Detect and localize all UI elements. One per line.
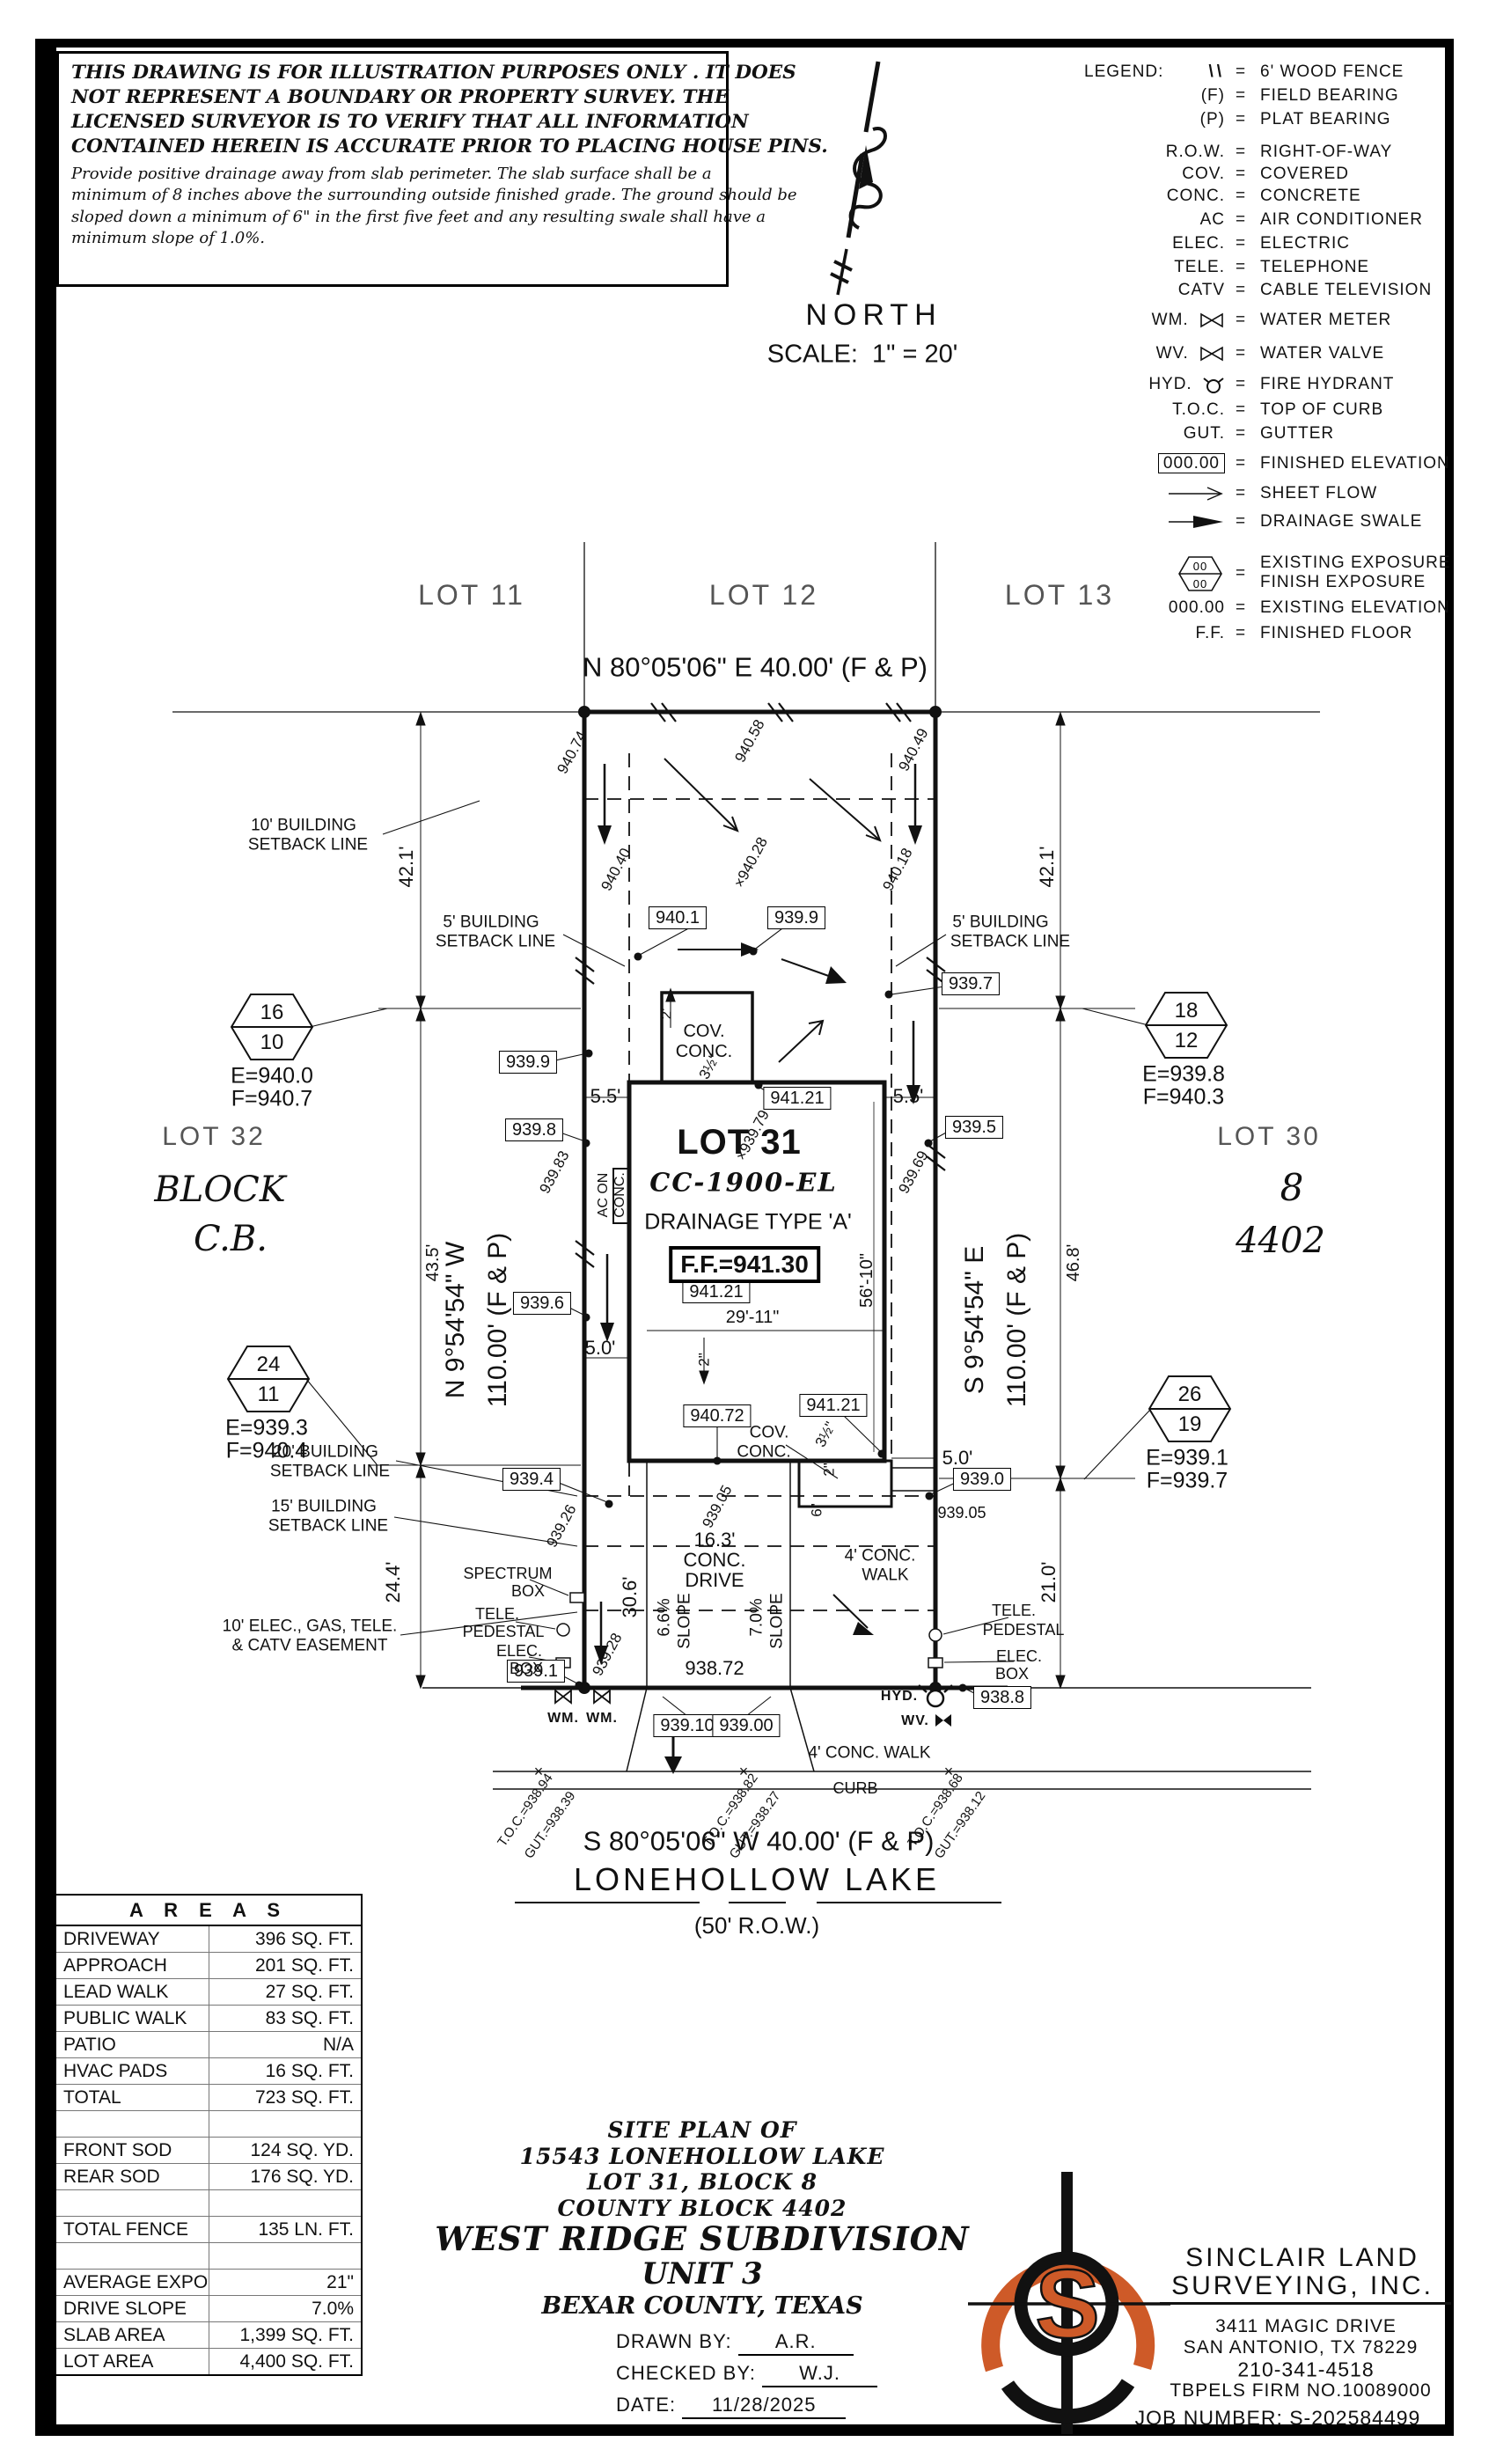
plan-text: 2' (659, 1008, 674, 1020)
plan-text: F=940.7 (231, 1089, 312, 1111)
plan-text: 5.5' (893, 1087, 924, 1106)
firm-address-2: SAN ANTONIO, TX 78229 (1184, 2337, 1419, 2358)
credits-block: DRAWN BY: A.R. CHECKED BY: W.J. DATE: 11… (616, 2330, 877, 2425)
plan-text: C.B. (194, 1221, 268, 1257)
area-label (55, 2111, 209, 2138)
date-label: DATE: (616, 2394, 676, 2416)
plan-text: 7.0% (749, 1598, 766, 1636)
south-bearing: S 80°05'06" W 40.00' (F & P) (583, 1828, 935, 1855)
plan-text: 10' ELEC., GAS, TELE. (223, 1618, 398, 1635)
area-value: 201 SQ. FT. (209, 1953, 362, 1979)
plan-text: F=939.7 (1147, 1470, 1228, 1492)
plan-text: HYD. (881, 1690, 918, 1704)
areas-row: SLAB AREA1,399 SQ. FT. (55, 2322, 362, 2349)
lot-32-label: LOT 32 (162, 1124, 266, 1150)
plan-text: BOX (510, 1661, 543, 1676)
area-label: AVERAGE EXPOSURE (55, 2270, 209, 2296)
plan-text: 939.6 (513, 1292, 571, 1315)
title-block: SITE PLAN OF15543 LONEHOLLOW LAKELOT 31,… (421, 2117, 984, 2321)
firm-address-1: 3411 MAGIC DRIVE (1215, 2316, 1397, 2337)
lot-13-label: LOT 13 (1005, 581, 1114, 609)
area-value: 124 SQ. YD. (209, 2138, 362, 2164)
plan-text: 110.00' (F & P) (485, 1233, 511, 1408)
firm-divider-line (1160, 2302, 1451, 2305)
plan-text: 8 (1280, 1170, 1304, 1206)
plan-text: 56'-10" (858, 1253, 876, 1308)
area-value: 723 SQ. FT. (209, 2085, 362, 2111)
row-width: (50' R.O.W.) (694, 1914, 819, 1937)
areas-row: REAR SOD176 SQ. YD. (55, 2164, 362, 2190)
plan-text: 939.8 (505, 1118, 563, 1141)
firm-name-1: SINCLAIR LAND (1185, 2243, 1419, 2273)
plan-text: BOX (995, 1666, 1029, 1682)
firm-name-2: SURVEYING, INC. (1171, 2271, 1434, 2301)
area-label: DRIVE SLOPE (55, 2296, 209, 2322)
plan-text: 5' BUILDING (952, 914, 1048, 931)
plan-text: & CATV EASEMENT (231, 1638, 387, 1654)
checked-by-row: CHECKED BY: W.J. (616, 2362, 877, 2387)
plan-text: 42.1' (397, 846, 416, 887)
plan-text: CONC. (613, 1172, 627, 1218)
area-value (209, 2243, 362, 2270)
plan-text: SPECTRUM (463, 1566, 552, 1581)
scale-label: SCALE: 1" = 20' (767, 342, 958, 368)
plan-text: BLOCK (154, 1172, 285, 1207)
plan-model: CC-1900-EL (649, 1170, 837, 1196)
plan-text: SETBACK LINE (436, 934, 555, 950)
finished-floor-elevation: F.F.=941.30 (669, 1246, 820, 1283)
plan-text: 5' BUILDING (443, 914, 539, 931)
area-label: PUBLIC WALK (55, 2006, 209, 2032)
plan-text: WM. (547, 1712, 579, 1726)
checked-by-value: W.J. (762, 2362, 877, 2387)
plan-text: 5.0' (585, 1338, 616, 1358)
date-row: DATE: 11/28/2025 (616, 2394, 877, 2419)
svg-text:S: S (1035, 2250, 1099, 2358)
area-value: 4,400 SQ. FT. (209, 2349, 362, 2376)
plan-text: 43.5' (424, 1244, 442, 1282)
plan-text: 941.21 (763, 1087, 831, 1110)
areas-row: DRIVE SLOPE7.0% (55, 2296, 362, 2322)
areas-row (55, 2243, 362, 2270)
areas-row: HVAC PADS16 SQ. FT. (55, 2058, 362, 2085)
area-value (209, 2190, 362, 2217)
plan-text: 46.8' (1065, 1244, 1082, 1282)
lot-30-label: LOT 30 (1217, 1124, 1321, 1150)
plan-text: 12 (1175, 1030, 1199, 1052)
lot-11-label: LOT 11 (418, 581, 525, 609)
plan-text: AC ON (597, 1173, 611, 1218)
job-number: JOB NUMBER: S-202584499 (1135, 2407, 1421, 2431)
area-label: SLAB AREA (55, 2322, 209, 2349)
plan-text: 939.5 (945, 1116, 1003, 1139)
plan-text: 10 (260, 1032, 284, 1053)
plan-text: 42.1' (1038, 846, 1057, 887)
plan-text: 21.0' (1039, 1561, 1059, 1602)
plan-text: DRIVE (685, 1571, 744, 1590)
plan-text: COV. (683, 1023, 724, 1040)
areas-table: A R E A SDRIVEWAY396 SQ. FT.APPROACH201 … (55, 1894, 363, 2376)
area-label: PATIO (55, 2032, 209, 2058)
drainage-type: DRAINAGE TYPE 'A' (644, 1212, 852, 1234)
area-label: LEAD WALK (55, 1979, 209, 2006)
plan-text: 30.6' (620, 1576, 640, 1617)
plan-text: TELE. (992, 1602, 1036, 1618)
plan-text: F=940.4 (226, 1441, 307, 1463)
areas-title: A R E A S (55, 1895, 362, 1925)
plan-text: PEDESTAL (983, 1622, 1065, 1638)
plan-text: E=939.8 (1142, 1064, 1225, 1086)
plan-text: 939.00 (712, 1714, 780, 1737)
plan-text: SETBACK LINE (248, 837, 368, 854)
area-label: DRIVEWAY (55, 1925, 209, 1953)
plan-text: 26 (1178, 1384, 1202, 1405)
area-value: 83 SQ. FT. (209, 2006, 362, 2032)
drawn-by-row: DRAWN BY: A.R. (616, 2330, 877, 2356)
plan-text: E=939.3 (225, 1418, 308, 1440)
plan-text: CONC. (684, 1551, 746, 1570)
plan-text: SLOPE (677, 1593, 693, 1648)
plan-text: WV. (901, 1714, 929, 1728)
north-bearing: N 80°05'06" E 40.00' (F & P) (583, 654, 928, 681)
area-value: N/A (209, 2032, 362, 2058)
areas-row: LOT AREA4,400 SQ. FT. (55, 2349, 362, 2376)
drawn-by-value: A.R. (738, 2330, 854, 2356)
area-value: 27 SQ. FT. (209, 1979, 362, 2006)
surveyor-logo: S (968, 2165, 1170, 2442)
plan-text: 939.0 (953, 1468, 1011, 1491)
title-block-line: BEXAR COUNTY, TEXAS (421, 2292, 984, 2321)
areas-row: APPROACH201 SQ. FT. (55, 1953, 362, 1979)
area-label: APPROACH (55, 1953, 209, 1979)
lot-12-label: LOT 12 (709, 581, 818, 609)
plan-text: 941.21 (799, 1394, 867, 1417)
plan-text: 939.4 (502, 1468, 561, 1491)
plan-text: ELEC. (996, 1648, 1042, 1664)
plan-text: 939.9 (767, 906, 825, 929)
areas-row: PATION/A (55, 2032, 362, 2058)
plan-text: WM. (586, 1712, 618, 1726)
title-block-line: WEST RIDGE SUBDIVISION (421, 2221, 984, 2257)
plan-text: 6.6% (656, 1598, 673, 1636)
plan-text: COV. (750, 1425, 789, 1441)
plan-text: CONC. (737, 1444, 790, 1461)
checked-by-label: CHECKED BY: (616, 2362, 756, 2384)
area-label: REAR SOD (55, 2164, 209, 2190)
plan-text: E=939.1 (1146, 1448, 1228, 1470)
area-label: TOTAL FENCE (55, 2217, 209, 2243)
east-bearing: S 9°54'54" E (962, 1246, 988, 1395)
plan-text: 6" (810, 1503, 825, 1517)
plan-text: 4' CONC. WALK (808, 1745, 930, 1762)
plan-text: 939.9 (499, 1051, 557, 1074)
plan-text: 11 (258, 1384, 280, 1405)
plan-text: CURB (832, 1780, 877, 1796)
area-label: LOT AREA (55, 2349, 209, 2376)
plan-text: 938.8 (973, 1686, 1031, 1709)
street-name: LONEHOLLOW LAKE (574, 1864, 940, 1896)
plan-text: 110.00' (F & P) (1004, 1233, 1030, 1408)
plan-text: 2" (697, 1353, 712, 1367)
plan-text: E=940.0 (231, 1066, 313, 1088)
areas-row: PUBLIC WALK83 SQ. FT. (55, 2006, 362, 2032)
areas-row (55, 2111, 362, 2138)
firm-phone: 210-341-4518 (1237, 2358, 1374, 2382)
areas-row: DRIVEWAY396 SQ. FT. (55, 1925, 362, 1953)
plan-text: 29'-11" (726, 1309, 780, 1326)
plan-text: BOX (511, 1583, 545, 1599)
area-value: 176 SQ. YD. (209, 2164, 362, 2190)
plan-text: 4402 (1236, 1223, 1325, 1258)
plan-text: 939.05 (937, 1505, 986, 1521)
area-value: 21" (209, 2270, 362, 2296)
plan-text: 5.5' (590, 1087, 621, 1106)
plan-text: 2" (822, 1463, 837, 1477)
title-block-line: UNIT 3 (421, 2257, 984, 2292)
plan-text: 941.21 (682, 1280, 750, 1303)
areas-row: AVERAGE EXPOSURE21" (55, 2270, 362, 2296)
plan-text: 939.7 (942, 972, 1000, 995)
plan-text: WALK (862, 1567, 908, 1584)
area-value: 1,399 SQ. FT. (209, 2322, 362, 2349)
area-label (55, 2243, 209, 2270)
plan-text: ELEC. (496, 1643, 542, 1659)
plan-text: 18 (1175, 1001, 1199, 1022)
plan-text: TELE. (475, 1606, 519, 1622)
plan-text: 16.3' (693, 1530, 735, 1550)
area-label: TOTAL (55, 2085, 209, 2111)
areas-row: FRONT SOD124 SQ. YD. (55, 2138, 362, 2164)
area-label: HVAC PADS (55, 2058, 209, 2085)
plan-text: 19 (1178, 1414, 1202, 1435)
firm-license: TBPELS FIRM NO.10089000 (1170, 2380, 1431, 2402)
plan-text: 24.4' (384, 1561, 403, 1602)
area-label: FRONT SOD (55, 2138, 209, 2164)
plan-text: 4' CONC. (845, 1548, 916, 1565)
title-block-line: SITE PLAN OF (421, 2117, 984, 2144)
plan-text: F=940.3 (1143, 1087, 1224, 1109)
plan-text: SLOPE (769, 1593, 786, 1648)
area-label (55, 2190, 209, 2217)
plan-text: 24 (257, 1354, 281, 1375)
area-value (209, 2111, 362, 2138)
areas-row: TOTAL FENCE135 LN. FT. (55, 2217, 362, 2243)
drawn-by-label: DRAWN BY: (616, 2330, 732, 2352)
area-value: 396 SQ. FT. (209, 1925, 362, 1953)
plan-text: 940.72 (683, 1404, 751, 1427)
plan-text: 939.10 (653, 1714, 721, 1737)
date-value: 11/28/2025 (682, 2394, 846, 2419)
title-block-line: 15543 LONEHOLLOW LAKE (421, 2144, 984, 2170)
title-block-line: COUNTY BLOCK 4402 (421, 2196, 984, 2222)
north-label: NORTH (805, 300, 942, 330)
area-value: 7.0% (209, 2296, 362, 2322)
areas-row: TOTAL723 SQ. FT. (55, 2085, 362, 2111)
plan-text: SETBACK LINE (270, 1463, 390, 1480)
plan-text: 938.72 (685, 1659, 744, 1678)
west-bearing: N 9°54'54" W (443, 1242, 469, 1398)
plan-text: SETBACK LINE (950, 934, 1070, 950)
plan-text: 16 (260, 1002, 284, 1023)
areas-row (55, 2190, 362, 2217)
plan-text: PEDESTAL (463, 1624, 545, 1639)
plan-text: 10' BUILDING (251, 818, 356, 834)
plan-text: 5.0' (942, 1448, 973, 1468)
plan-text: 940.1 (649, 906, 707, 929)
areas-row: LEAD WALK27 SQ. FT. (55, 1979, 362, 2006)
plan-text: 15' BUILDING (271, 1499, 377, 1515)
area-value: 16 SQ. FT. (209, 2058, 362, 2085)
plan-text: SETBACK LINE (268, 1518, 388, 1535)
area-value: 135 LN. FT. (209, 2217, 362, 2243)
title-block-line: LOT 31, BLOCK 8 (421, 2169, 984, 2196)
